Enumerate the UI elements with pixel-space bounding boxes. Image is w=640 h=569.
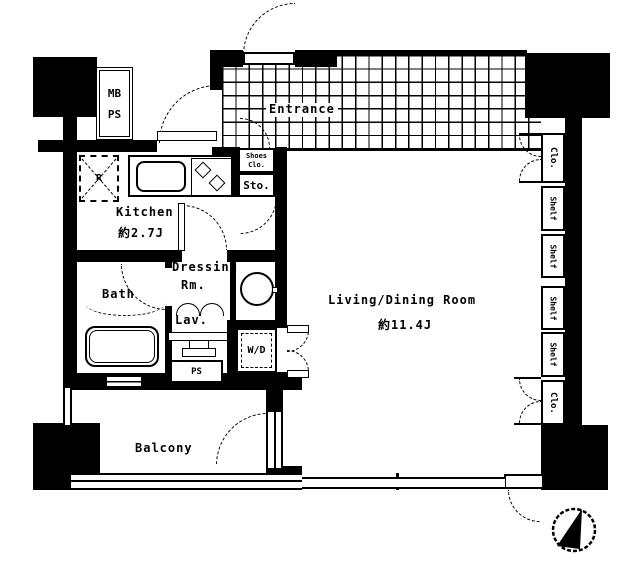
balcony-railing xyxy=(71,473,302,490)
pillar-top-left xyxy=(33,57,97,117)
bath-window xyxy=(105,375,143,388)
pillar-bottom-right xyxy=(541,425,608,490)
shoes-closet-label-line1: Shoes xyxy=(246,152,267,160)
lavatory-label: Lav. xyxy=(175,314,208,328)
balcony-label: Balcony xyxy=(135,442,193,456)
pipe-space-label: PS xyxy=(191,367,202,377)
dressing-room-label-line2: Rm. xyxy=(181,279,206,293)
kitchen-door-panel xyxy=(178,203,185,251)
wall-living-west xyxy=(275,147,287,328)
shelf-label: Shelf xyxy=(549,296,558,320)
closet-door-swing-arc xyxy=(519,159,541,181)
shoes-closet-label-line2: Clo. xyxy=(248,161,265,169)
wall xyxy=(266,390,283,414)
storage-label: Sto. xyxy=(243,179,270,192)
ps-label: PS xyxy=(108,108,121,121)
entrance-door-swing-arc xyxy=(243,3,295,55)
entrance-label: Entrance xyxy=(266,103,338,117)
stove xyxy=(191,158,232,196)
meter-box-pipe-space: MB PS xyxy=(96,67,133,140)
bath-label: Bath xyxy=(102,288,135,302)
shelf-label: Shelf xyxy=(549,244,558,268)
terrace-door-panel xyxy=(504,474,544,489)
entrance-door-panel xyxy=(243,52,295,65)
hall-door-panel xyxy=(157,131,217,141)
balcony-door-window xyxy=(266,412,283,468)
mb-label: MB xyxy=(108,87,121,100)
closet-door-swing-arc xyxy=(519,401,541,423)
balcony-door-swing-arc xyxy=(216,413,268,465)
dressing-room-label-line1: Dressing xyxy=(172,261,238,275)
terrace-door-swing-arc xyxy=(508,490,540,522)
shelf-unit: Shelf xyxy=(541,332,565,377)
wd-door-swing-arc xyxy=(287,350,309,372)
storage-closet: Sto. xyxy=(238,173,275,197)
wd-door-panel xyxy=(287,325,309,333)
closet-top-label: Clo. xyxy=(548,147,558,169)
closet-bottom: Clo. xyxy=(541,380,565,425)
shelf-label: Shelf xyxy=(549,196,558,220)
wall xyxy=(38,140,157,152)
washer-dryer-label: W/D xyxy=(246,345,266,356)
closet-door-swing-arc xyxy=(519,379,541,401)
closet-bottom-label: Clo. xyxy=(548,392,558,414)
balcony-side-rail xyxy=(63,388,72,425)
shelf-label: Shelf xyxy=(549,342,558,366)
pipe-space: PS xyxy=(170,360,223,383)
lavatory-basin-base xyxy=(182,348,216,357)
bathtub-inner-line xyxy=(89,330,155,363)
toilet-flush-knob xyxy=(272,287,278,293)
wd-door-panel xyxy=(287,370,309,378)
shoes-closet: Shoes Clo. xyxy=(238,148,275,173)
shelf-unit: Shelf xyxy=(541,286,565,330)
living-dining-area-label: 約11.4J xyxy=(378,319,432,333)
pillar-top-right xyxy=(525,53,610,118)
wall-east xyxy=(565,118,582,425)
toilet-fixture xyxy=(240,272,274,306)
kitchen-door-swing-arc xyxy=(182,205,227,250)
compass-icon xyxy=(546,502,602,558)
bathtub-fixture xyxy=(85,326,159,367)
living-room-window xyxy=(302,477,505,489)
closet-door-panel xyxy=(514,423,541,425)
wall xyxy=(227,320,287,328)
washer-dryer: W/D xyxy=(236,328,277,373)
floor-plan: MB PS R Shoes Clo. Sto. PS W xyxy=(0,0,640,569)
shelf-unit: Shelf xyxy=(541,186,565,231)
wd-door-swing-arc xyxy=(287,330,309,352)
wall-entrance-north xyxy=(212,50,243,67)
closet-top: Clo. xyxy=(541,133,565,183)
closet-door-swing-arc xyxy=(519,135,541,157)
closet-door-panel xyxy=(519,181,541,183)
shelf-unit: Shelf xyxy=(541,234,565,278)
kitchen-label: Kitchen xyxy=(116,206,174,220)
kitchen-area-label: 約2.7J xyxy=(118,227,164,241)
kitchen-sink xyxy=(136,161,186,192)
storage-door-swing-arc xyxy=(240,197,277,234)
wall-entrance-north xyxy=(295,50,337,67)
living-dining-label: Living/Dining Room xyxy=(328,294,476,308)
